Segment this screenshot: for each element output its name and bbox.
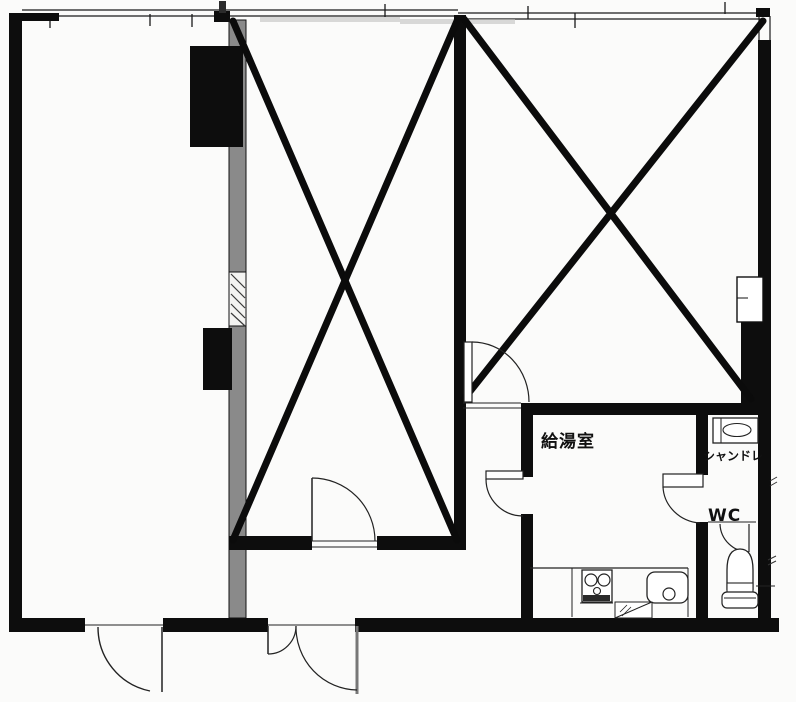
middle-room-door — [312, 478, 377, 547]
entry-door-double — [268, 625, 357, 694]
kitchenette-label: 給湯室 — [541, 431, 595, 452]
top-edge-mark — [219, 1, 226, 13]
shampoo-dresser-label: シャンドレ — [703, 449, 763, 463]
kitchenette-door-west — [486, 471, 523, 516]
middle-room-south-wall — [229, 536, 466, 550]
left-wall — [9, 13, 22, 632]
kitchenette-door-east — [663, 474, 703, 523]
crossed-out-middle-room — [233, 21, 457, 540]
two-burner-stove — [580, 570, 613, 603]
kitchen-sink — [647, 572, 688, 603]
wc-label: WC — [708, 506, 741, 526]
shampoo-dresser-vanity — [713, 418, 758, 443]
east-room-door — [463, 342, 529, 408]
wall-hatch-section — [229, 272, 246, 326]
entry-door-left — [85, 625, 163, 692]
crossed-out-east-room — [464, 19, 763, 399]
pipe-shaft-box — [737, 277, 763, 322]
middle-east-wall — [454, 15, 466, 545]
top-wall — [9, 2, 770, 28]
pillar-block-upper — [190, 46, 243, 147]
floor-plan: 給湯室 シャンドレ WC — [0, 0, 796, 702]
pillar-block-lower — [203, 328, 232, 390]
hatched-service-box — [615, 602, 652, 618]
wc-door — [708, 522, 756, 552]
